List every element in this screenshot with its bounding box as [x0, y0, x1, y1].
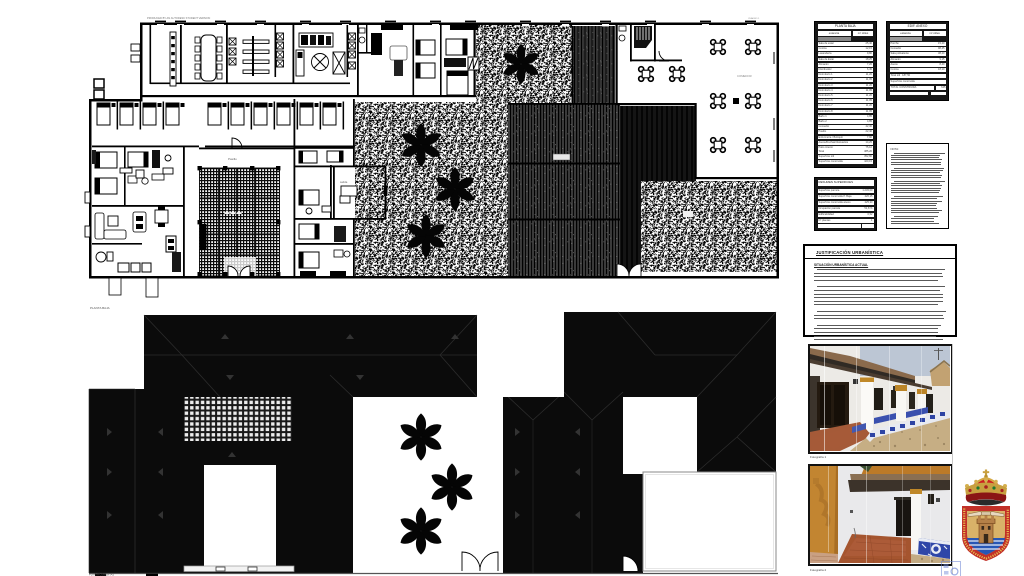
svg-text:COMEDOR: COMEDOR [737, 74, 752, 78]
svg-text:salida: salida [340, 180, 348, 184]
svg-text:PLANTA BAJA: PLANTA BAJA [90, 306, 110, 310]
svg-text:CUADRO 1: CUADRO 1 [748, 17, 760, 20]
svg-text:PLANTA CUBIERTAS: PLANTA CUBIERTAS [89, 573, 114, 576]
svg-text:PRODUCED BY AN AUTODESK STUDEN: PRODUCED BY AN AUTODESK STUDENT VERSION [147, 16, 210, 20]
svg-text:Pasillo: Pasillo [228, 157, 237, 161]
